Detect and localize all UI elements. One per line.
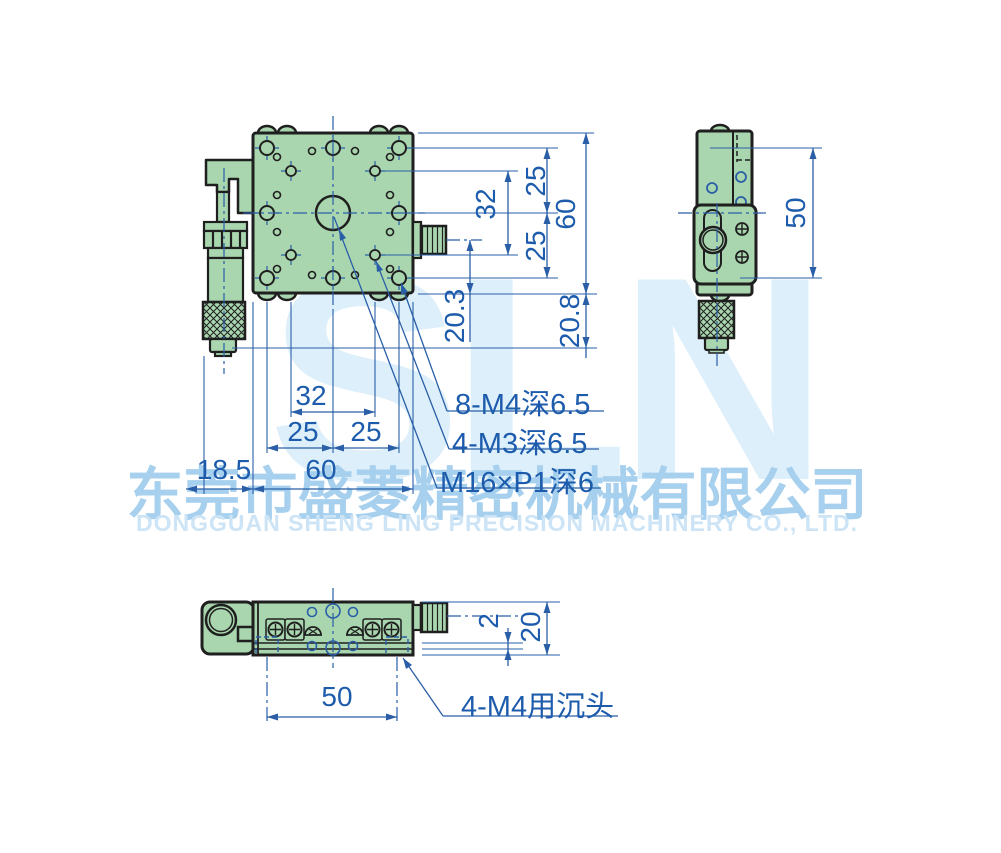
dim-front-60-vert: 60 (550, 198, 582, 229)
callout-4-m4-counterbore: 4-M4用沉头 (461, 683, 614, 725)
dim-front-32-horiz: 32 (295, 380, 326, 412)
drawing-canvas: SLN 东莞市盛菱精密机械有限公司 DONGGUAN SHENG LING PR… (0, 0, 1001, 853)
side-view (678, 125, 822, 366)
dim-side-50: 50 (780, 197, 812, 228)
dim-front-25-left: 25 (287, 416, 318, 448)
callout-4-m3: 4-M3深6.5 (452, 420, 587, 462)
side-lock-circle (700, 227, 726, 253)
dim-front-20-8: 20.8 (554, 294, 586, 349)
feed-knob (413, 222, 446, 258)
dim-front-60-horiz: 60 (305, 454, 336, 486)
bottom-knob (413, 603, 447, 632)
dim-front-25-top: 25 (520, 165, 552, 196)
callout-m16-p1: M16×P1深6 (440, 459, 594, 501)
dim-bottom-20: 20 (515, 611, 547, 642)
dim-front-32-vert: 32 (470, 188, 502, 219)
dim-front-25-right: 25 (350, 416, 381, 448)
dim-front-20-3: 20.3 (439, 289, 471, 344)
callout-8-m4: 8-M4深6.5 (455, 381, 590, 423)
dim-bottom-2: 2 (473, 613, 505, 629)
micrometer-head (203, 192, 247, 356)
dim-front-18-5: 18.5 (197, 454, 252, 486)
dim-bottom-50: 50 (321, 681, 352, 713)
dim-front-25-bottom: 25 (520, 230, 552, 261)
